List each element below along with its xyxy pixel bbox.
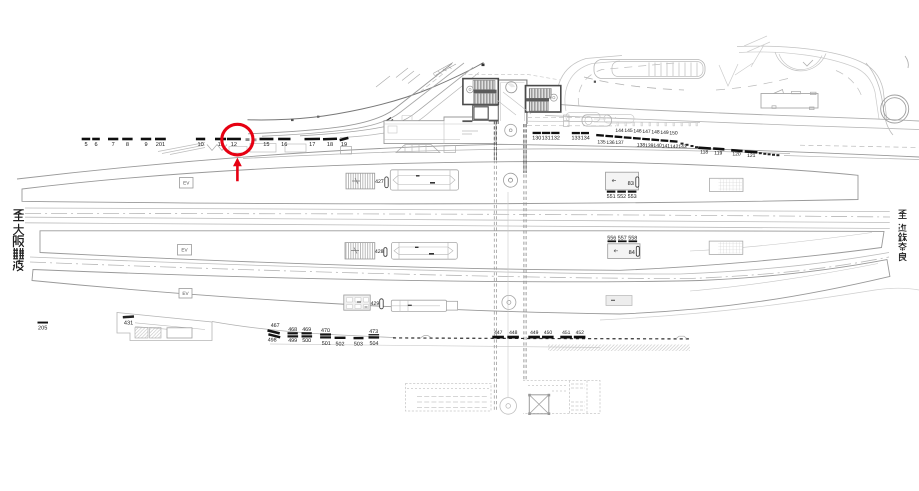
svg-text:136: 136 (606, 140, 615, 146)
svg-text:448: 448 (509, 330, 518, 336)
svg-text:201: 201 (156, 142, 165, 148)
svg-text:142: 142 (670, 144, 679, 150)
svg-text:6: 6 (94, 142, 97, 148)
svg-text:449: 449 (530, 330, 539, 336)
svg-text:8: 8 (126, 142, 129, 148)
svg-text:147: 147 (642, 129, 651, 135)
svg-text:145: 145 (624, 128, 633, 134)
svg-text:141: 141 (662, 144, 671, 150)
svg-text:150: 150 (669, 130, 678, 136)
svg-text:500: 500 (302, 338, 311, 344)
svg-text:130: 130 (532, 135, 541, 141)
svg-text:473: 473 (369, 329, 378, 335)
svg-text:15: 15 (263, 142, 269, 148)
svg-text:502: 502 (336, 341, 345, 347)
svg-text:138: 138 (637, 142, 646, 148)
svg-text:499: 499 (288, 338, 297, 344)
svg-text:504: 504 (370, 341, 379, 347)
svg-text:12: 12 (231, 142, 237, 148)
svg-text:134: 134 (581, 136, 590, 142)
svg-text:10: 10 (197, 142, 203, 148)
svg-text:149: 149 (660, 130, 669, 136)
svg-text:131: 131 (542, 135, 551, 141)
svg-text:452: 452 (576, 330, 585, 336)
svg-text:EV: EV (182, 291, 189, 296)
svg-text:9: 9 (144, 142, 147, 148)
svg-text:427: 427 (375, 179, 384, 185)
svg-text:470: 470 (321, 328, 330, 334)
svg-text:498: 498 (268, 338, 277, 344)
svg-text:137: 137 (615, 140, 624, 146)
svg-text:139: 139 (645, 143, 654, 149)
svg-text:205: 205 (38, 325, 47, 331)
svg-text:EV: EV (183, 181, 190, 186)
svg-text:146: 146 (633, 129, 642, 135)
svg-text:503: 503 (354, 341, 363, 347)
svg-text:7: 7 (112, 142, 115, 148)
svg-text:467: 467 (271, 323, 280, 329)
svg-text:551: 551 (607, 194, 616, 200)
svg-text:19: 19 (341, 142, 347, 148)
svg-text:148: 148 (651, 130, 660, 136)
svg-text:17: 17 (309, 142, 315, 148)
svg-text:133: 133 (572, 136, 581, 142)
svg-text:135: 135 (597, 140, 606, 146)
svg-text:447: 447 (494, 330, 503, 336)
svg-text:431: 431 (124, 321, 133, 327)
svg-text:EV: EV (181, 248, 188, 253)
svg-text:119: 119 (714, 150, 722, 156)
svg-text:468: 468 (288, 327, 297, 333)
svg-text:18: 18 (327, 142, 333, 148)
svg-text:121: 121 (747, 153, 756, 159)
svg-text:120: 120 (732, 152, 741, 158)
svg-text:5: 5 (84, 142, 87, 148)
svg-text:469: 469 (302, 327, 311, 333)
svg-text:501: 501 (322, 341, 331, 347)
svg-text:118: 118 (700, 150, 708, 156)
svg-text:140: 140 (653, 143, 662, 149)
svg-text:451: 451 (562, 330, 571, 336)
svg-text:144: 144 (615, 128, 624, 134)
svg-text:429: 429 (371, 301, 380, 307)
svg-text:84: 84 (629, 250, 635, 256)
svg-text:552: 552 (617, 194, 626, 200)
svg-text:16: 16 (281, 142, 287, 148)
svg-text:553: 553 (628, 194, 637, 200)
svg-text:450: 450 (544, 330, 553, 336)
svg-text:132: 132 (551, 135, 560, 141)
svg-text:428: 428 (375, 249, 384, 255)
svg-text:83: 83 (628, 181, 634, 187)
